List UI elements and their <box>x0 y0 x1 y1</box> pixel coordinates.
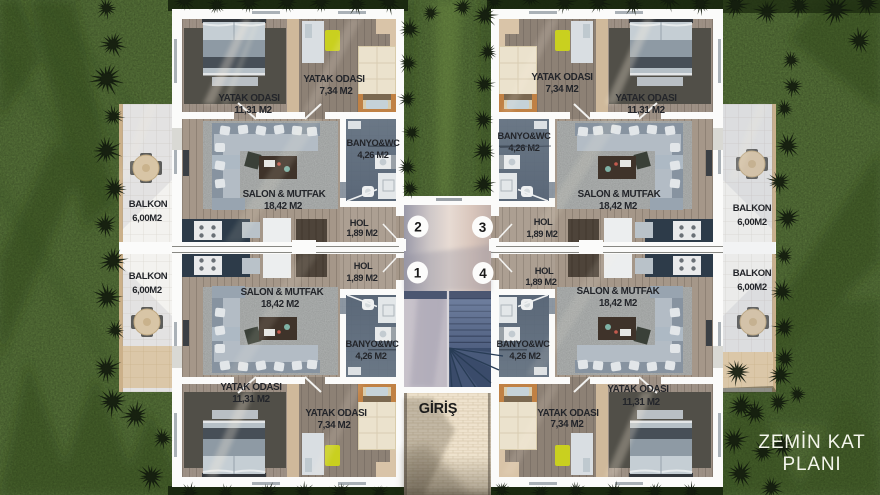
svg-text:BALKON: BALKON <box>733 203 772 214</box>
svg-text:YATAK ODASI: YATAK ODASI <box>305 408 367 419</box>
svg-text:6,00M2: 6,00M2 <box>737 282 767 293</box>
svg-text:YATAK ODASI: YATAK ODASI <box>303 74 365 85</box>
svg-text:7,34 M2: 7,34 M2 <box>546 84 580 95</box>
svg-text:YATAK ODASI: YATAK ODASI <box>218 93 280 104</box>
svg-text:4,26 M2: 4,26 M2 <box>508 143 539 153</box>
svg-text:GİRİŞ: GİRİŞ <box>419 400 458 417</box>
svg-text:3: 3 <box>479 220 487 235</box>
svg-text:18,42 M2: 18,42 M2 <box>261 299 300 310</box>
svg-text:SALON & MUTFAK: SALON & MUTFAK <box>577 286 660 297</box>
svg-text:HOL: HOL <box>534 217 553 227</box>
svg-text:1: 1 <box>414 265 422 280</box>
svg-text:HOL: HOL <box>535 266 554 276</box>
svg-text:6,00M2: 6,00M2 <box>132 285 162 296</box>
svg-text:BALKON: BALKON <box>733 268 772 279</box>
svg-text:7,34 M2: 7,34 M2 <box>320 86 354 97</box>
svg-text:SALON & MUTFAK: SALON & MUTFAK <box>243 189 326 200</box>
svg-text:BANYO&WC: BANYO&WC <box>347 138 401 148</box>
svg-text:YATAK ODASI: YATAK ODASI <box>531 72 593 83</box>
svg-text:SALON & MUTFAK: SALON & MUTFAK <box>578 189 661 200</box>
svg-text:BANYO&WC: BANYO&WC <box>497 339 551 349</box>
svg-text:6,00M2: 6,00M2 <box>132 213 162 224</box>
svg-text:1,89 M2: 1,89 M2 <box>526 229 557 239</box>
svg-text:1,89 M2: 1,89 M2 <box>346 273 377 283</box>
svg-text:ZEMİN KAT: ZEMİN KAT <box>758 432 865 453</box>
svg-text:2: 2 <box>414 219 422 234</box>
svg-text:11,31 M2: 11,31 M2 <box>232 394 270 405</box>
svg-text:7,34 M2: 7,34 M2 <box>318 420 352 431</box>
svg-text:11,31 M2: 11,31 M2 <box>627 105 665 116</box>
svg-text:4,26 M2: 4,26 M2 <box>509 351 540 361</box>
svg-text:YATAK ODASI: YATAK ODASI <box>615 93 677 104</box>
svg-text:YATAK ODASI: YATAK ODASI <box>607 384 669 395</box>
svg-text:YATAK ODASI: YATAK ODASI <box>537 408 599 419</box>
svg-text:18,42 M2: 18,42 M2 <box>264 201 303 212</box>
svg-text:HOL: HOL <box>354 261 373 271</box>
svg-text:6,00M2: 6,00M2 <box>737 217 767 228</box>
svg-text:BANYO&WC: BANYO&WC <box>498 131 552 141</box>
svg-text:1,89 M2: 1,89 M2 <box>346 228 377 238</box>
svg-text:7,34 M2: 7,34 M2 <box>551 419 585 430</box>
svg-text:4,26 M2: 4,26 M2 <box>357 150 388 160</box>
svg-text:1,89 M2: 1,89 M2 <box>525 277 556 287</box>
svg-text:PLANI: PLANI <box>783 454 842 475</box>
svg-text:4: 4 <box>479 266 487 281</box>
svg-text:BALKON: BALKON <box>129 199 168 210</box>
svg-text:18,42 M2: 18,42 M2 <box>599 298 638 309</box>
svg-text:HOL: HOL <box>350 218 369 228</box>
svg-text:4,26 M2: 4,26 M2 <box>355 351 386 361</box>
svg-text:11,31 M2: 11,31 M2 <box>234 105 272 116</box>
svg-text:BANYO&WC: BANYO&WC <box>346 339 400 349</box>
svg-text:YATAK ODASI: YATAK ODASI <box>220 382 282 393</box>
svg-text:18,42 M2: 18,42 M2 <box>599 201 638 212</box>
svg-text:BALKON: BALKON <box>129 271 168 282</box>
svg-text:SALON & MUTFAK: SALON & MUTFAK <box>241 287 324 298</box>
svg-text:11,31 M2: 11,31 M2 <box>622 397 660 408</box>
